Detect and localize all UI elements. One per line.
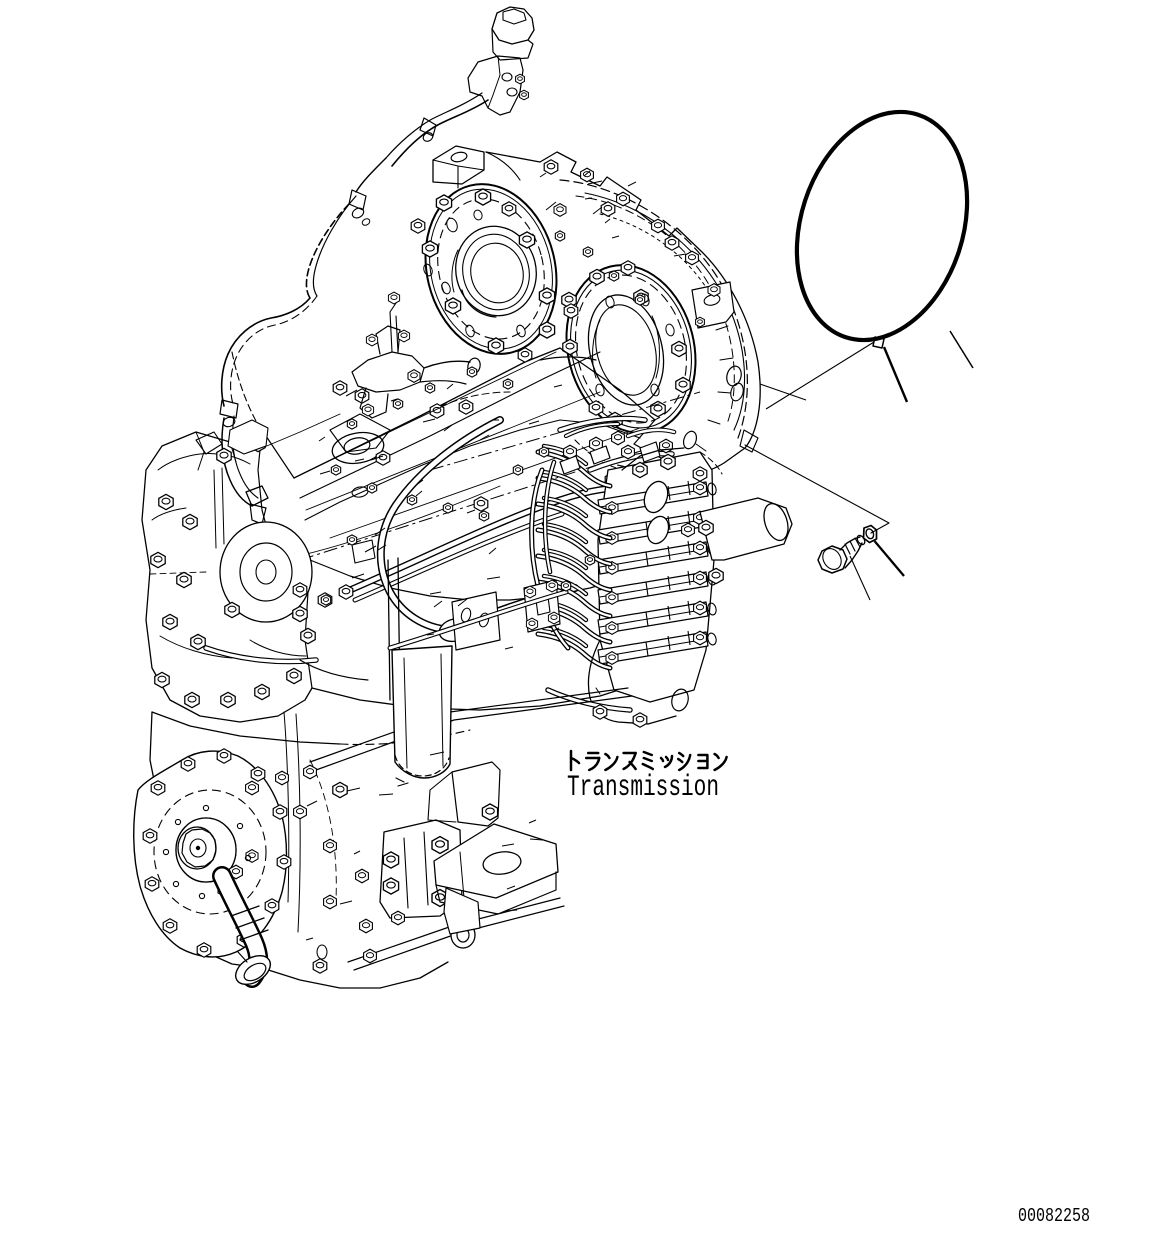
svg-text:00082258: 00082258 [1018, 1205, 1090, 1227]
svg-text:Transmission: Transmission [567, 771, 719, 805]
